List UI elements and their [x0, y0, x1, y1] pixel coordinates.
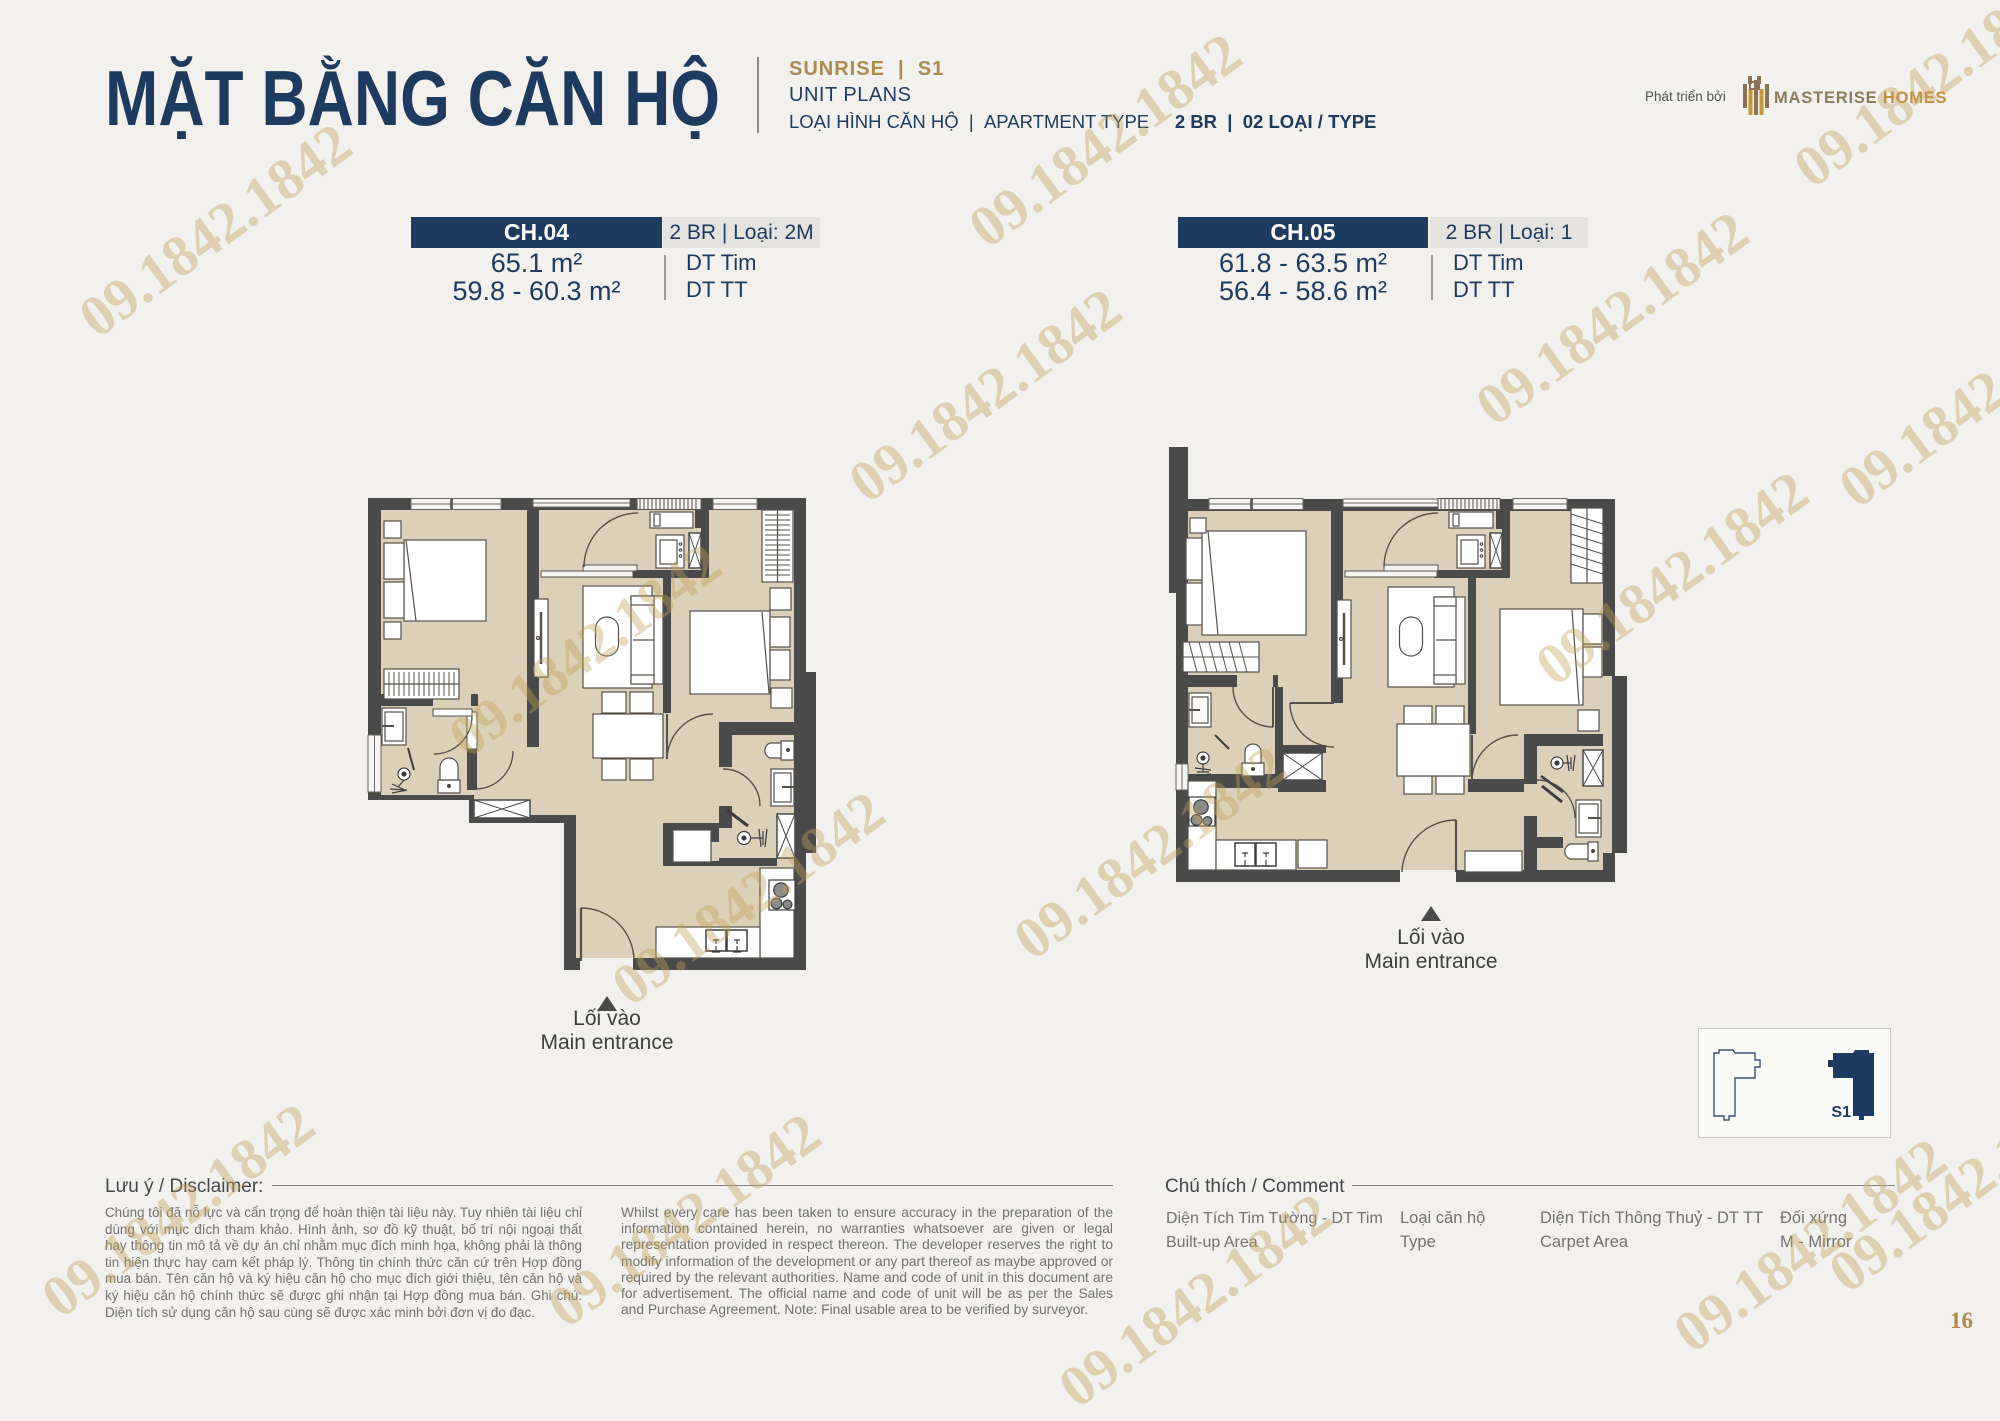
svg-text:S1: S1: [1831, 1104, 1851, 1121]
